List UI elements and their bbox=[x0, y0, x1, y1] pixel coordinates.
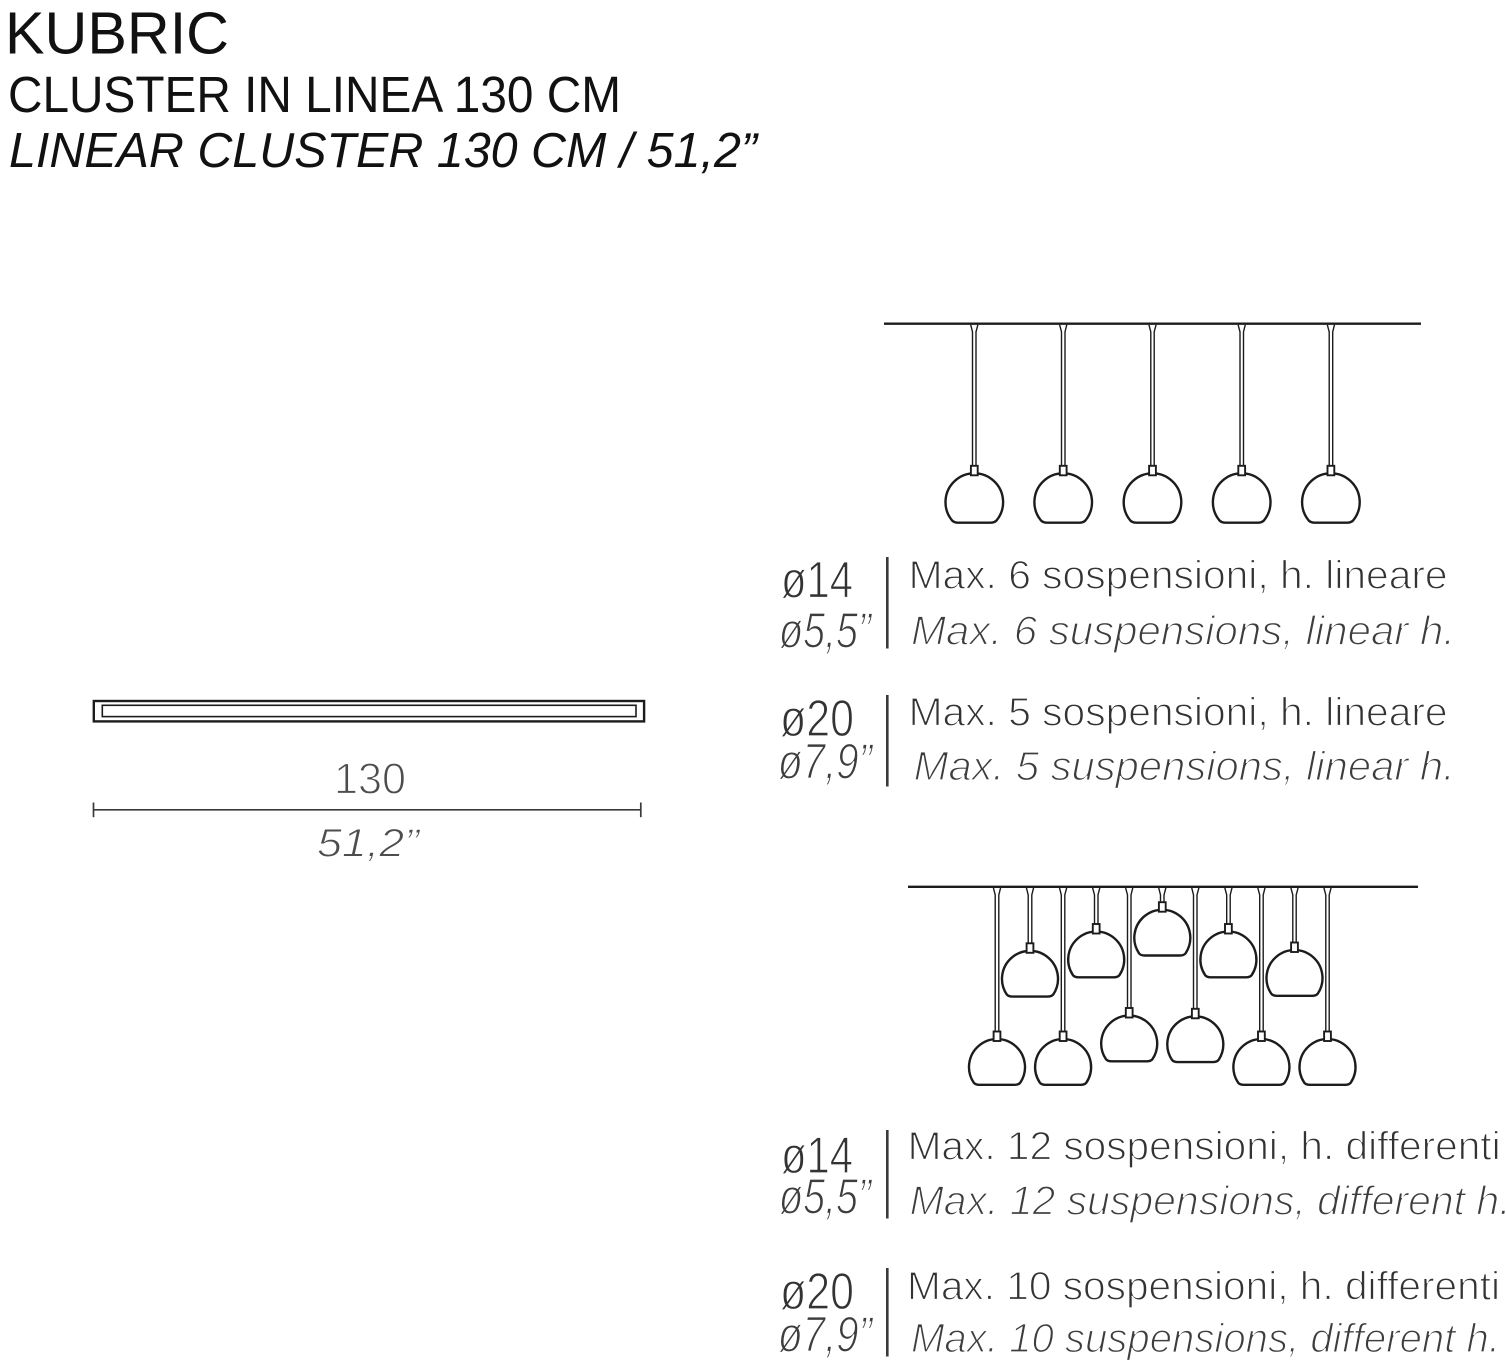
svg-text:ø7,9”: ø7,9” bbox=[778, 1307, 874, 1363]
svg-text:ø14: ø14 bbox=[781, 552, 853, 610]
svg-text:Max. 5 suspensions, linear h.: Max. 5 suspensions, linear h. bbox=[914, 743, 1455, 789]
svg-text:Max. 12 suspensions, different: Max. 12 suspensions, different h. bbox=[910, 1178, 1506, 1224]
svg-text:ø5,5”: ø5,5” bbox=[779, 1169, 873, 1225]
svg-text:ø7,9”: ø7,9” bbox=[778, 734, 874, 790]
svg-text:Max. 6 sospensioni, h. lineare: Max. 6 sospensioni, h. lineare bbox=[909, 553, 1448, 597]
svg-text:Max. 10 sospensioni, h. differ: Max. 10 sospensioni, h. differenti bbox=[907, 1265, 1500, 1309]
svg-text:CLUSTER IN LINEA 130 CM: CLUSTER IN LINEA 130 CM bbox=[8, 66, 621, 123]
svg-text:Max. 12 sospensioni, h. differ: Max. 12 sospensioni, h. differenti bbox=[908, 1125, 1501, 1169]
svg-text:ø5,5”: ø5,5” bbox=[779, 603, 873, 659]
svg-text:Max. 6 suspensions, linear h.: Max. 6 suspensions, linear h. bbox=[911, 607, 1455, 653]
svg-text:Max. 5 sospensioni, h. lineare: Max. 5 sospensioni, h. lineare bbox=[909, 691, 1448, 735]
svg-text:130: 130 bbox=[334, 755, 406, 803]
svg-text:Max. 10 suspensions, different: Max. 10 suspensions, different h. bbox=[911, 1315, 1500, 1361]
svg-text:KUBRIC: KUBRIC bbox=[5, 0, 229, 66]
svg-text:LINEAR CLUSTER 130 CM / 51,2”: LINEAR CLUSTER 130 CM / 51,2” bbox=[9, 124, 760, 178]
svg-text:51,2”: 51,2” bbox=[317, 822, 421, 866]
